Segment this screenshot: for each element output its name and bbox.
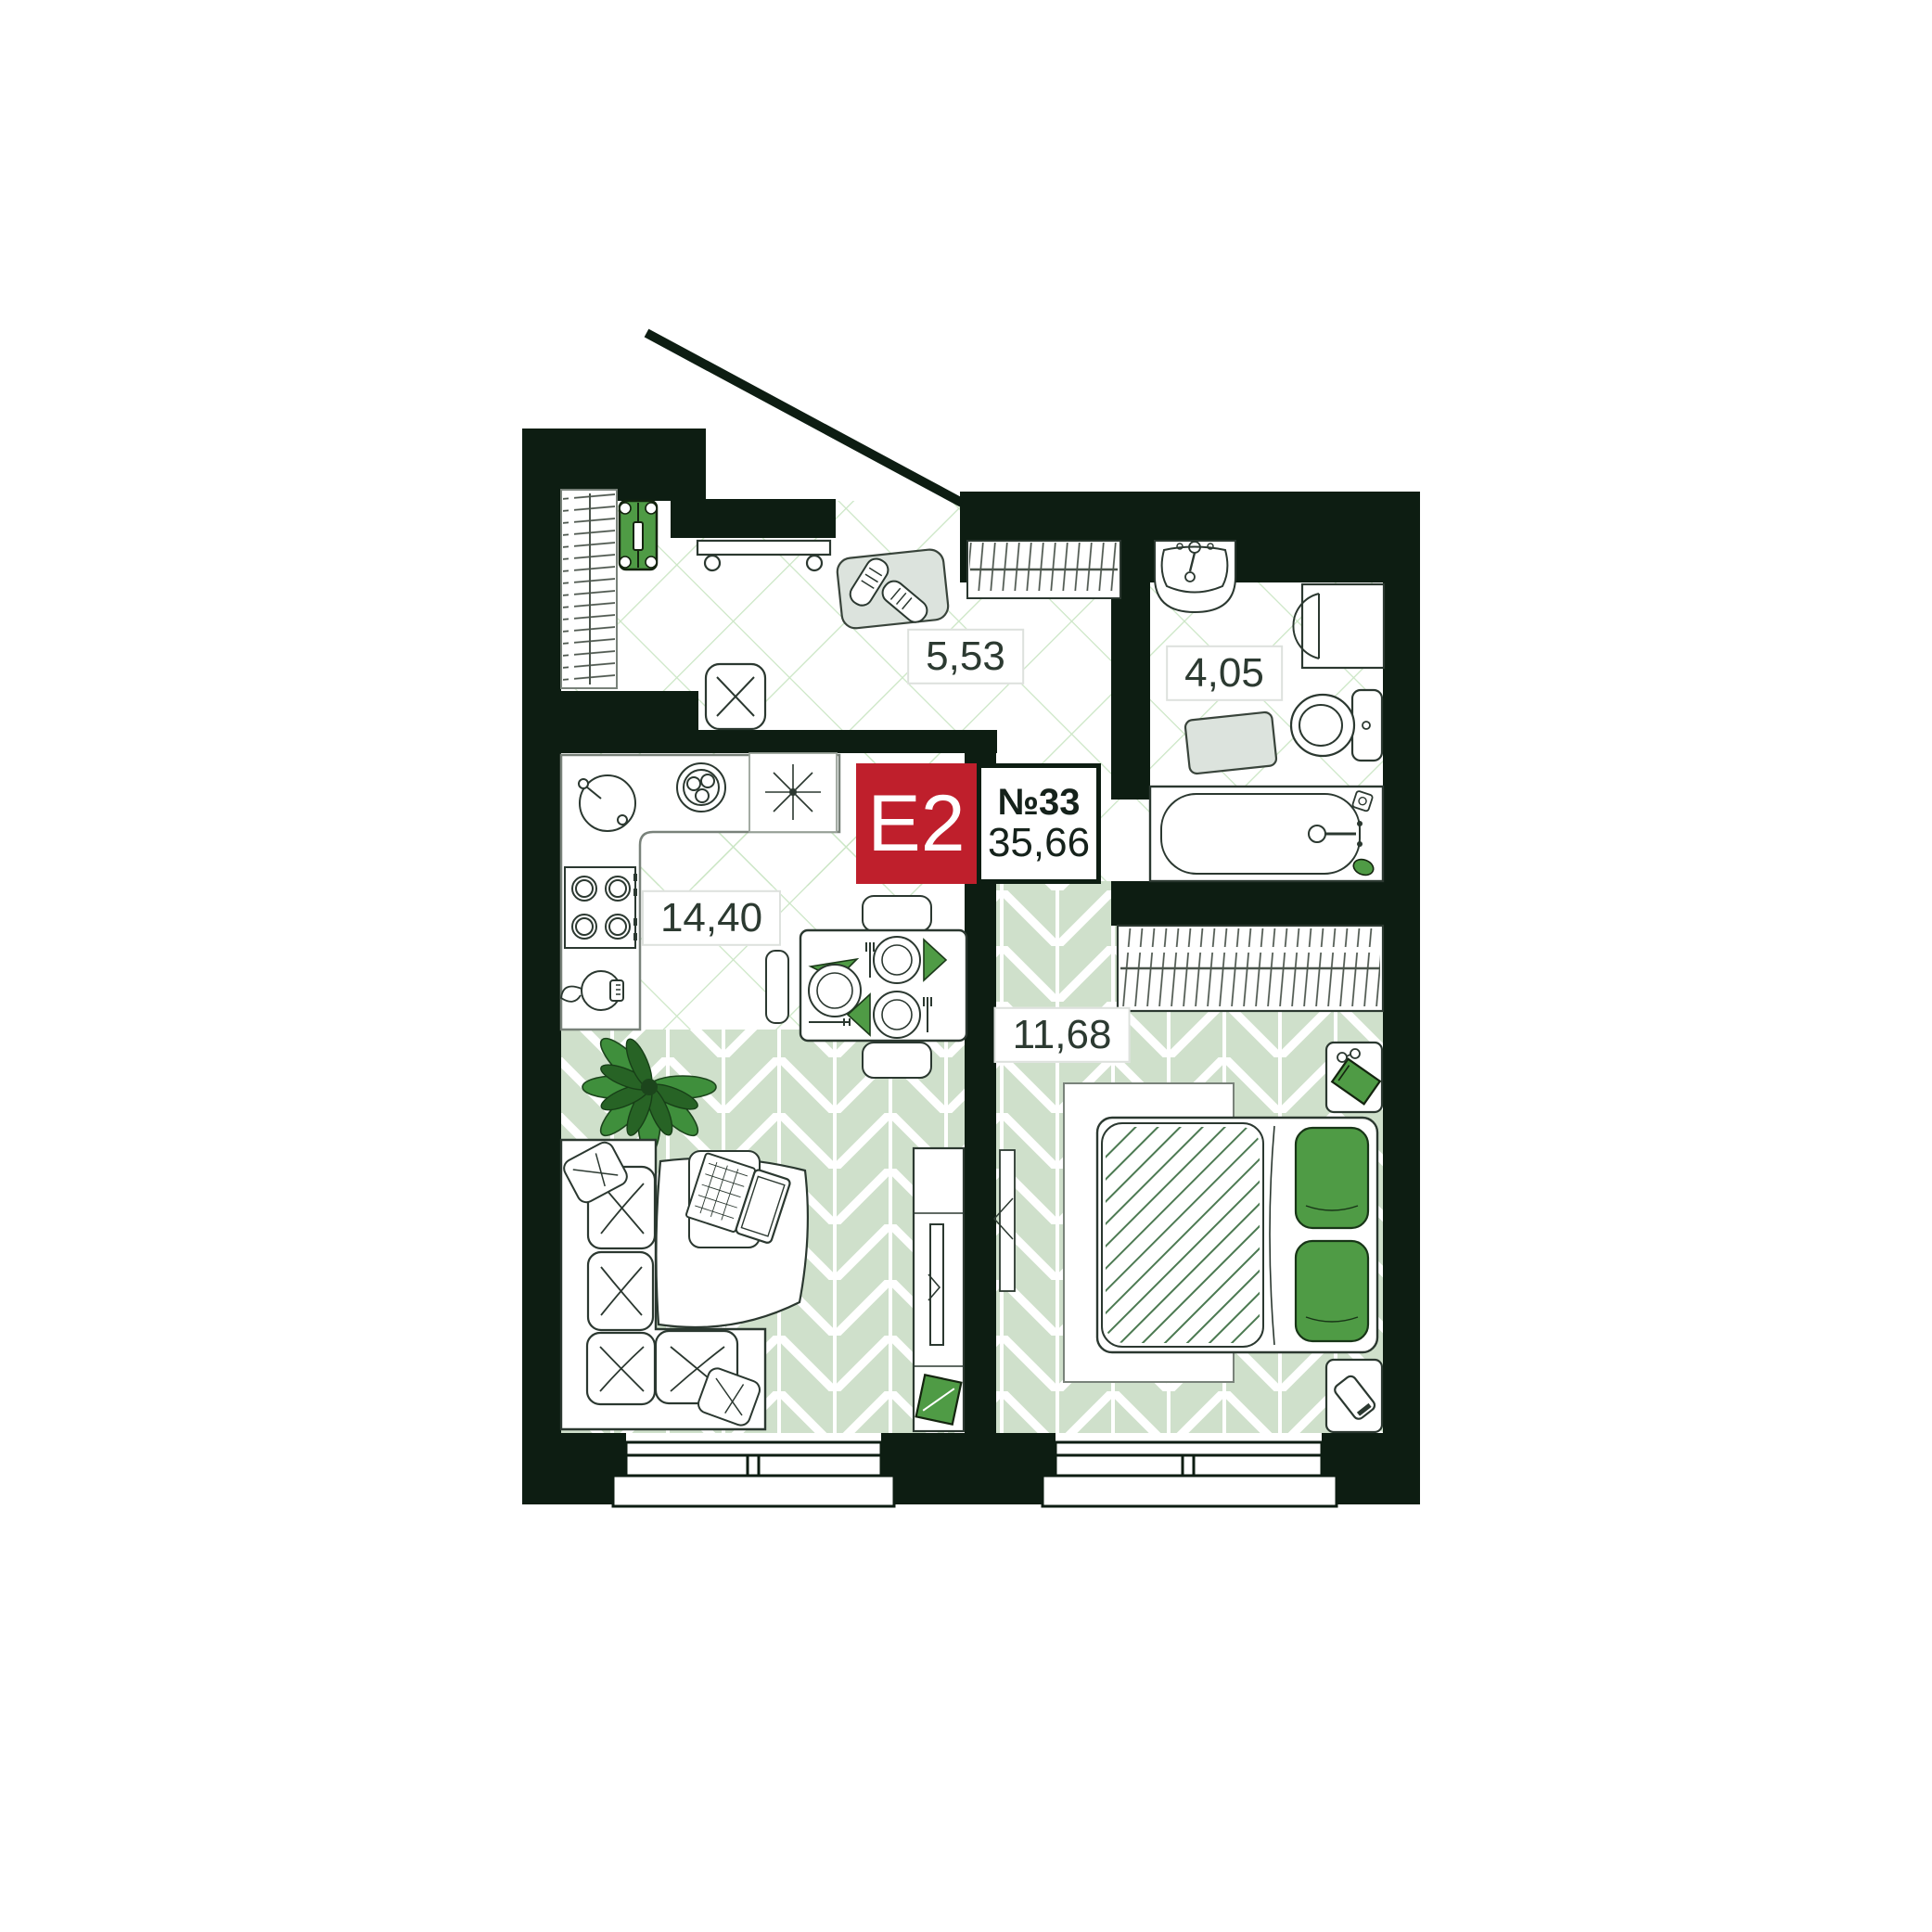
wall-right <box>1383 492 1420 1504</box>
toilet-icon <box>1291 690 1382 761</box>
area-label-bathroom: 4,05 <box>1166 646 1283 701</box>
tv-stand-icon <box>914 1148 964 1431</box>
light-symbol-icon <box>749 753 837 832</box>
chair-left-icon <box>766 951 788 1023</box>
bathtub-icon <box>1150 787 1383 881</box>
floorplan-drawing <box>0 0 1932 1932</box>
closet-icon <box>561 490 617 688</box>
wall-bottom-2 <box>881 1433 1056 1504</box>
nightstand-bottom-icon <box>1326 1360 1382 1432</box>
wall-top-step <box>671 499 836 538</box>
bath-mat-icon <box>1184 711 1277 774</box>
apartment-info: №33 35,66 <box>977 763 1101 884</box>
duvet-hatch <box>1106 1127 1260 1343</box>
wall-hall-kitchen-a <box>522 691 698 753</box>
window-living <box>613 1442 894 1506</box>
shoe-rug-icon <box>836 547 950 633</box>
area-label-kitchen-living: 14,40 <box>642 890 781 946</box>
nightstand-top-icon <box>1326 1043 1382 1112</box>
suitcase-icon <box>620 501 657 569</box>
apartment-type-label: E2 <box>856 763 977 884</box>
chair-top-icon <box>863 896 931 931</box>
cooktop-icon <box>565 867 637 948</box>
green-pillow-icon <box>1296 1241 1368 1341</box>
green-pillow-icon <box>1296 1128 1368 1228</box>
storage-box-icon <box>916 1375 962 1424</box>
washbasin-icon <box>1155 541 1235 612</box>
washing-machine-icon <box>1293 584 1384 668</box>
chair-bottom-icon <box>863 1043 931 1078</box>
apartment-badge[interactable]: E2 №33 35,66 <box>856 763 1101 884</box>
double-bed-icon <box>1097 1118 1377 1352</box>
wardrobe-icon <box>1118 926 1383 1011</box>
wall-hall-kitchen-b <box>698 730 997 753</box>
wall-bathroom-south <box>1111 881 1383 926</box>
apartment-total-area: 35,66 <box>988 822 1090 864</box>
wall-left <box>522 429 561 1504</box>
area-label-hallway: 5,53 <box>907 629 1024 685</box>
pouf-icon <box>706 664 765 729</box>
kitchen-sink-icon <box>579 775 635 831</box>
window-bedroom <box>1043 1442 1337 1506</box>
area-label-bedroom: 11,68 <box>994 1007 1131 1063</box>
entry-shelf-icon <box>967 541 1120 598</box>
apartment-number: №33 <box>997 783 1080 822</box>
floorplan-page: 5,53 4,05 14,40 11,68 E2 №33 35,66 <box>0 0 1932 1932</box>
wall-bottom-1 <box>522 1433 626 1504</box>
wall-bathroom-west <box>1111 582 1150 800</box>
